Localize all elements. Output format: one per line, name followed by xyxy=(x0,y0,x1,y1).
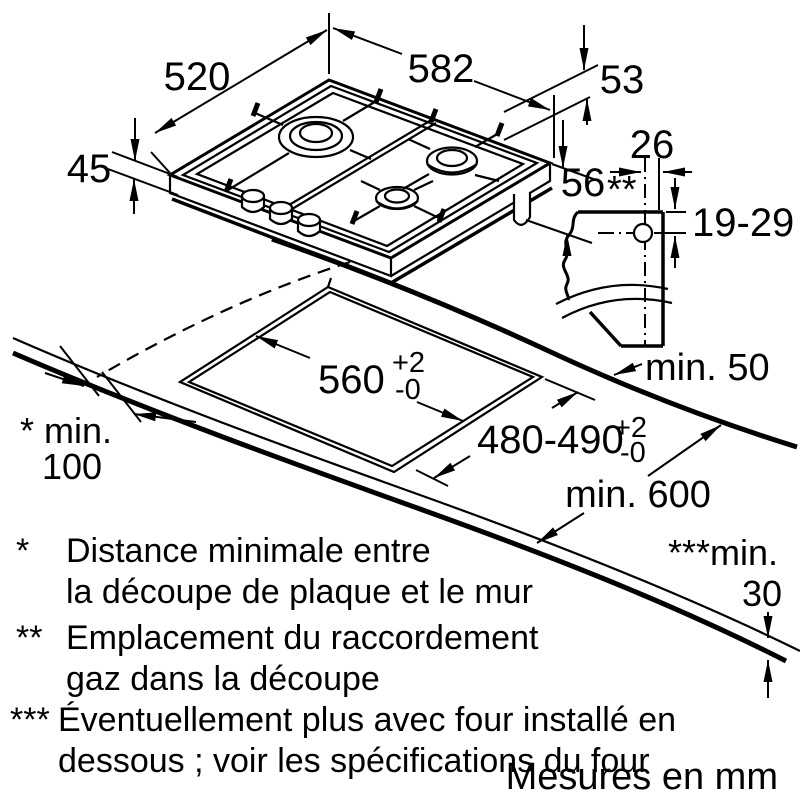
dim-rear-clearance-label: min. 50 xyxy=(645,347,770,389)
installation-diagram-page: 520 582 53 45 56 ** 26 xyxy=(0,0,800,800)
dimension-gas-depth: 19-29 xyxy=(666,178,794,268)
dim-worktop-depth-label: min. 600 xyxy=(565,474,711,516)
dim-width-label: 582 xyxy=(408,47,475,91)
dimension-rear-clearance: min. 50 xyxy=(614,347,770,389)
footnote-3-line1: Éventuellement plus avec four installé e… xyxy=(58,701,676,739)
dimension-cutout-width: 560 +2 -0 xyxy=(256,336,463,421)
footnote-2-line2: gaz dans la découpe xyxy=(66,660,380,698)
dimension-cutout-depth: 480-490 +2 -0 xyxy=(416,379,647,486)
footnote-2-line1: Emplacement du raccordement xyxy=(66,619,539,657)
dim-edge-offset-label: 53 xyxy=(600,58,645,102)
units-note: Mesures en mm xyxy=(506,756,778,798)
dimension-edge-offset: 53 xyxy=(504,25,644,140)
dim-side-clearance-label: * min. xyxy=(20,410,112,451)
footnote-1-line2: la découpe de plaque et le mur xyxy=(66,573,533,611)
hob-drawing xyxy=(170,80,552,283)
dim-side-clearance-value: 100 xyxy=(42,446,102,487)
dim-height-left-label: 45 xyxy=(67,147,112,191)
footnote-1-marker: * xyxy=(16,532,29,570)
dim-cutout-width-label: 560 xyxy=(318,358,385,402)
gas-connection-point xyxy=(634,224,652,242)
dim-cutout-depth-minus: -0 xyxy=(620,437,646,469)
dim-cutout-width-minus: -0 xyxy=(395,374,421,406)
footnote-1-line1: Distance minimale entre xyxy=(66,532,431,570)
wall-line xyxy=(272,239,797,447)
dim-height-right-label: 56 xyxy=(561,161,606,205)
dimension-height-right: 56 ** xyxy=(526,120,637,256)
dim-gas-offset-label: 26 xyxy=(630,123,675,167)
dim-gas-depth-label: 19-29 xyxy=(692,201,794,245)
footnote-3-marker: *** xyxy=(10,701,50,739)
footnote-2-marker: ** xyxy=(16,619,42,657)
dimension-height-left: 45 xyxy=(67,118,178,214)
dim-worktop-thickness-value: 30 xyxy=(742,573,782,614)
installation-diagram: 520 582 53 45 56 ** 26 xyxy=(0,0,800,800)
burner-large xyxy=(279,117,353,157)
dim-cutout-depth-label: 480-490 xyxy=(477,418,624,462)
dim-depth-label: 520 xyxy=(164,55,231,99)
dim-height-right-marker: ** xyxy=(607,169,637,211)
dim-worktop-thickness-label: ***min. xyxy=(668,532,778,573)
